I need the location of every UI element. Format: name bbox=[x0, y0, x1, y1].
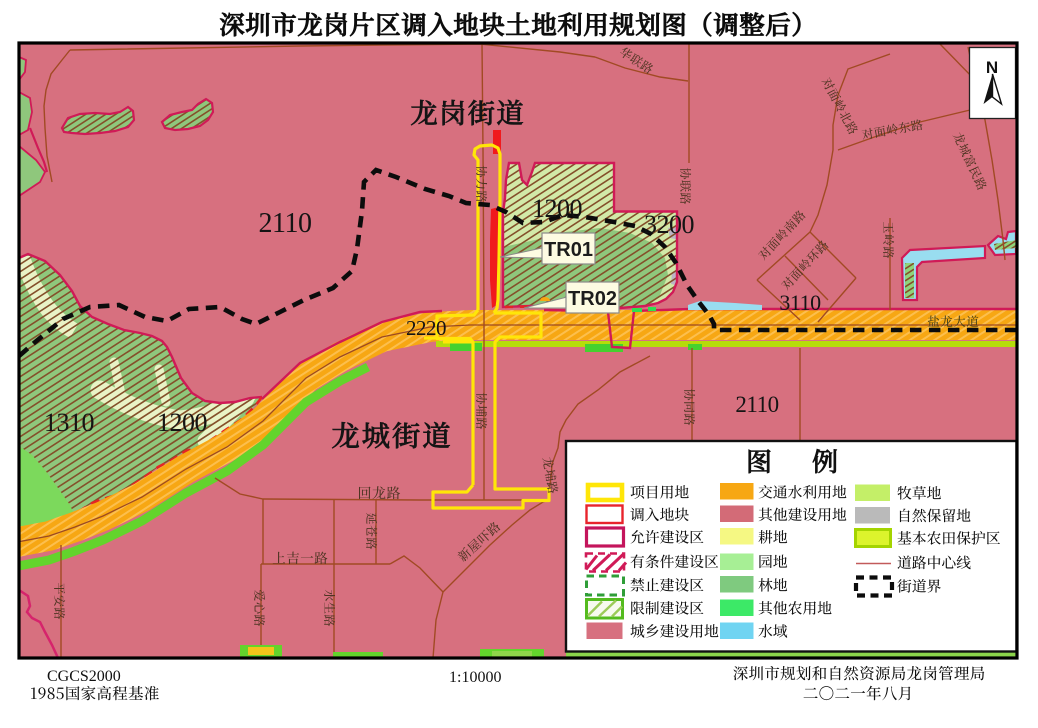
svg-text:2110: 2110 bbox=[259, 208, 312, 239]
svg-text:2220: 2220 bbox=[406, 316, 446, 340]
svg-text:TR02: TR02 bbox=[568, 288, 617, 310]
svg-text:CGCS2000: CGCS2000 bbox=[47, 668, 121, 685]
svg-text:1310: 1310 bbox=[44, 408, 95, 437]
svg-text:1200: 1200 bbox=[157, 408, 208, 437]
svg-text:3200: 3200 bbox=[644, 210, 695, 239]
svg-text:3110: 3110 bbox=[779, 290, 821, 315]
svg-text:1200: 1200 bbox=[532, 194, 583, 223]
svg-text:1:10000: 1:10000 bbox=[449, 669, 501, 686]
svg-text:2110: 2110 bbox=[735, 392, 778, 417]
svg-text:TR01: TR01 bbox=[544, 239, 593, 261]
